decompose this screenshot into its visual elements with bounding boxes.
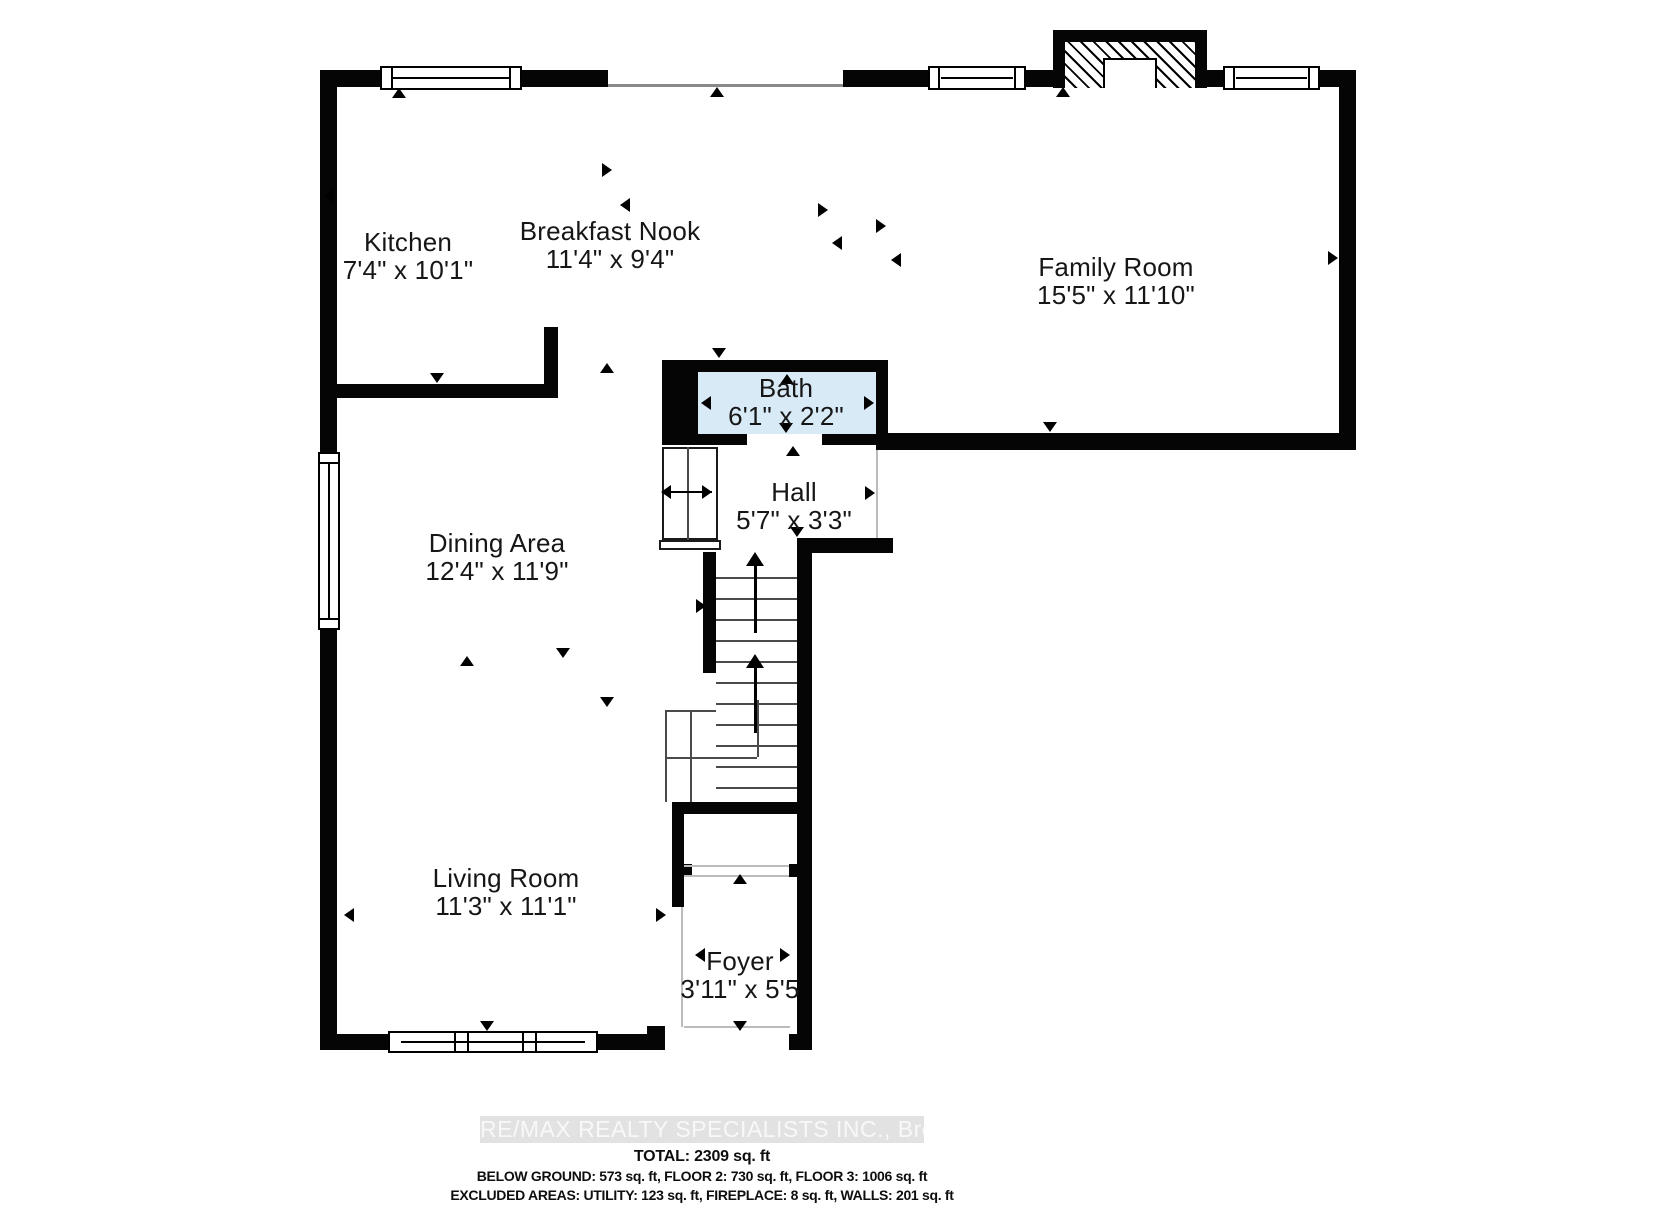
area-excluded: EXCLUDED AREAS: UTILITY: 123 sq. ft, FIR…: [352, 1186, 1052, 1205]
room-label-living-room: Living Room 11'3" x 11'1": [336, 864, 676, 920]
window-family-top-2: [1223, 66, 1320, 90]
room-dimensions: 12'4" x 11'9": [327, 557, 667, 585]
dimension-arrow-icon: [832, 236, 842, 250]
dimension-arrow-icon: [891, 253, 901, 267]
wall-kitchen-bottom: [337, 384, 558, 398]
firebox: [1103, 58, 1157, 88]
area-total: TOTAL: 2309 sq. ft: [352, 1147, 1052, 1167]
dimension-arrow-icon: [710, 87, 724, 97]
wall-kitchen-stub: [544, 327, 558, 398]
dimension-arrow-icon: [556, 648, 570, 658]
room-dimensions: 15'5" x 11'10": [946, 281, 1286, 309]
dimension-arrow-icon: [733, 874, 747, 884]
room-dimensions: 3'11" x 5'5: [570, 975, 910, 1003]
stair-tread: [716, 640, 797, 642]
window-frame-line: [1014, 68, 1016, 88]
stair-winder-line: [665, 710, 716, 712]
dimension-arrow-icon: [430, 373, 444, 383]
foyer-opening-line: [684, 865, 789, 867]
window-glass-line: [401, 1041, 585, 1043]
dimension-arrow-icon: [602, 163, 612, 177]
window-frame-line: [938, 68, 940, 88]
window-living-bottom: [388, 1031, 598, 1053]
window-frame-line: [320, 462, 338, 464]
floor-plan-page: { "rooms": [ { "name": "Kitchen", "dims"…: [0, 0, 1680, 1215]
room-label-bath: Bath 6'1" x 2'2": [616, 374, 956, 430]
dimension-arrow-icon: [480, 1021, 494, 1031]
wall-family-bottom: [876, 433, 1356, 450]
wall-stair-right-foot: [789, 1034, 812, 1050]
room-name: Dining Area: [327, 529, 667, 557]
dimension-arrow-icon: [786, 446, 800, 456]
window-glass-line: [393, 77, 509, 79]
room-name: Family Room: [946, 253, 1286, 281]
room-label-dining-area: Dining Area 12'4" x 11'9": [327, 529, 667, 585]
room-label-breakfast-nook: Breakfast Nook 11'4" x 9'4": [440, 217, 780, 273]
window-mullion: [522, 1033, 537, 1051]
window-frame-line: [509, 68, 511, 88]
dimension-arrow-icon: [600, 697, 614, 707]
room-label-family-room: Family Room 15'5" x 11'10": [946, 253, 1286, 309]
window-glass-line: [1236, 77, 1307, 79]
room-name: Bath: [616, 374, 956, 402]
dimension-arrow-icon: [600, 363, 614, 373]
room-name: Living Room: [336, 864, 676, 892]
dimension-arrow-icon: [1056, 87, 1070, 97]
dimension-arrow-icon: [818, 203, 828, 217]
stair-up-arrow-icon: [746, 552, 764, 566]
stair-tread: [716, 766, 797, 768]
stair-winder-line: [665, 710, 667, 802]
stair-up-arrow-shaft: [754, 566, 757, 633]
window-frame-line: [1308, 68, 1310, 88]
room-dimensions: 6'1" x 2'2": [616, 402, 956, 430]
stair-winder-line: [665, 757, 757, 759]
wall-right: [1339, 70, 1356, 450]
dimension-arrow-icon: [392, 88, 406, 98]
room-label-foyer: Foyer 3'11" x 5'5: [570, 947, 910, 1003]
brokerage-watermark: RE/MAX REALTY SPECIALISTS INC., Brokerag…: [480, 1116, 924, 1143]
dimension-arrow-icon: [733, 1021, 747, 1031]
window-kitchen-top: [380, 66, 522, 90]
window-mullion: [454, 1033, 469, 1051]
stair-up-arrow-shaft: [754, 668, 757, 733]
stair-landing-bar: [659, 540, 721, 550]
wall-foyer-stub-right: [789, 864, 797, 877]
opening-line-breakfast-top: [608, 84, 843, 87]
room-dimensions: 11'3" x 11'1": [336, 892, 676, 920]
bath-door-opening: [747, 434, 822, 445]
stair-winder-line: [757, 700, 759, 757]
window-glass-line: [941, 77, 1013, 79]
window-frame-line: [391, 68, 393, 88]
dimension-arrow-icon: [696, 599, 706, 613]
area-floors: BELOW GROUND: 573 sq. ft, FLOOR 2: 730 s…: [352, 1167, 1052, 1186]
room-name: Breakfast Nook: [440, 217, 780, 245]
window-frame-line: [320, 618, 338, 620]
wall-living-bottom-foot: [647, 1026, 665, 1036]
dimension-arrow-icon: [460, 656, 474, 666]
room-name: Foyer: [570, 947, 910, 975]
stair-up-arrow-icon: [746, 654, 764, 668]
dimension-arrow-icon: [324, 189, 334, 203]
dimension-arrow-icon: [1043, 422, 1057, 432]
area-summary: TOTAL: 2309 sq. ft BELOW GROUND: 573 sq.…: [352, 1147, 1052, 1205]
window-family-top-1: [928, 66, 1026, 90]
window-frame-line: [1233, 68, 1235, 88]
room-dimensions: 11'4" x 9'4": [440, 245, 780, 273]
room-dimensions: 5'7" x 3'3": [624, 506, 964, 534]
stair-winder-line: [690, 710, 692, 802]
wall-stair-foyer-divider: [672, 802, 812, 814]
room-label-hall: Hall 5'7" x 3'3": [624, 478, 964, 534]
stair-tread: [716, 787, 797, 789]
dimension-arrow-icon: [712, 348, 726, 358]
dimension-arrow-icon: [620, 198, 630, 212]
floor-plan: Kitchen 7'4" x 10'1" Breakfast Nook 11'4…: [0, 0, 1680, 1215]
dimension-arrow-icon: [1328, 251, 1338, 265]
dimension-arrow-icon: [876, 219, 886, 233]
room-name: Hall: [624, 478, 964, 506]
